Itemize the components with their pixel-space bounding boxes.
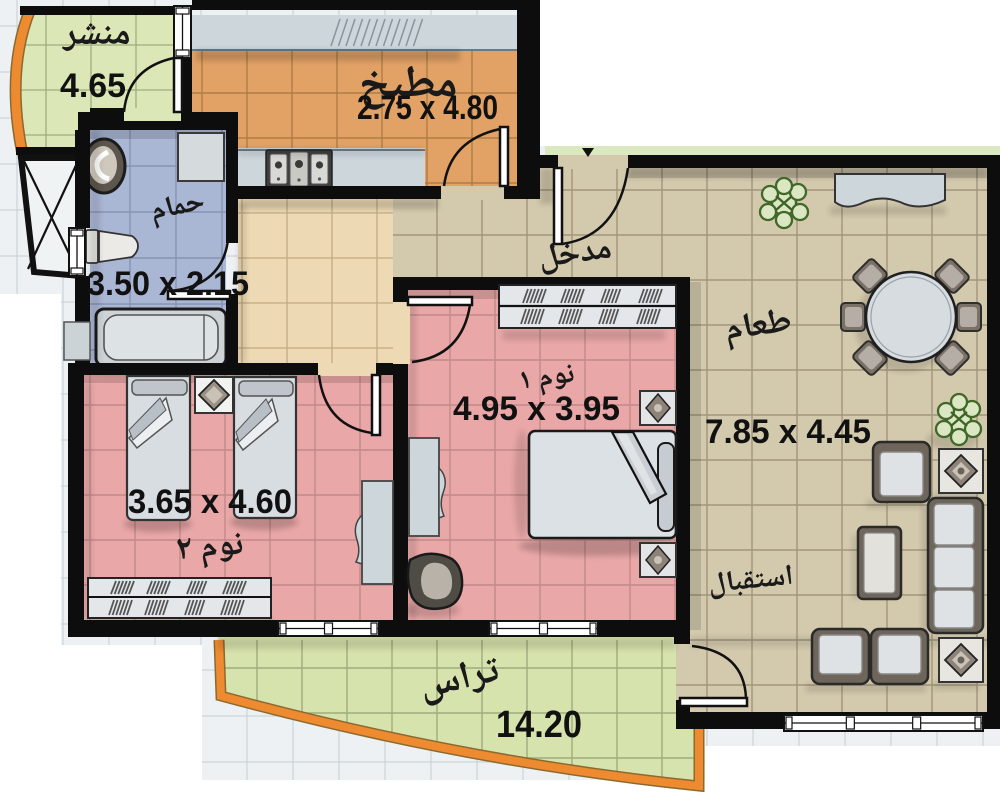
svg-text:7.85 x 4.45: 7.85 x 4.45 [705, 413, 871, 451]
svg-text:4.65: 4.65 [60, 67, 126, 105]
svg-text:3.50 x 2.15: 3.50 x 2.15 [87, 265, 249, 303]
svg-text:4.95 x 3.95: 4.95 x 3.95 [453, 390, 620, 428]
svg-text:3.65 x 4.60: 3.65 x 4.60 [128, 483, 292, 521]
svg-text:2.75 x 4.80: 2.75 x 4.80 [357, 89, 498, 127]
svg-text:14.20: 14.20 [496, 704, 582, 746]
